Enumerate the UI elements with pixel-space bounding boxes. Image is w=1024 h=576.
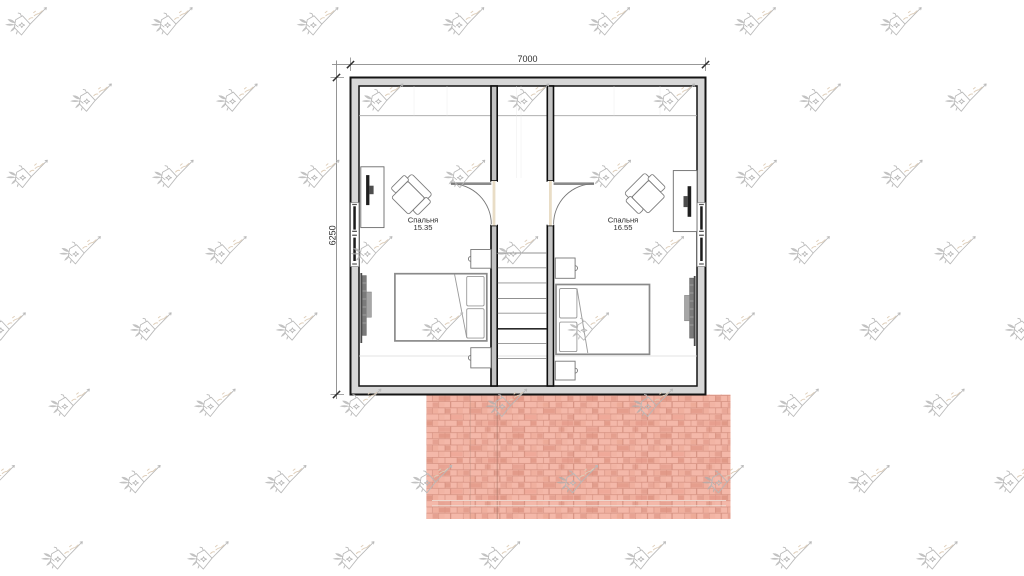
svg-text:7000: 7000 [517, 54, 537, 64]
svg-text:15.35: 15.35 [413, 223, 432, 232]
svg-text:6250: 6250 [327, 225, 337, 245]
svg-text:16.55: 16.55 [613, 223, 632, 232]
